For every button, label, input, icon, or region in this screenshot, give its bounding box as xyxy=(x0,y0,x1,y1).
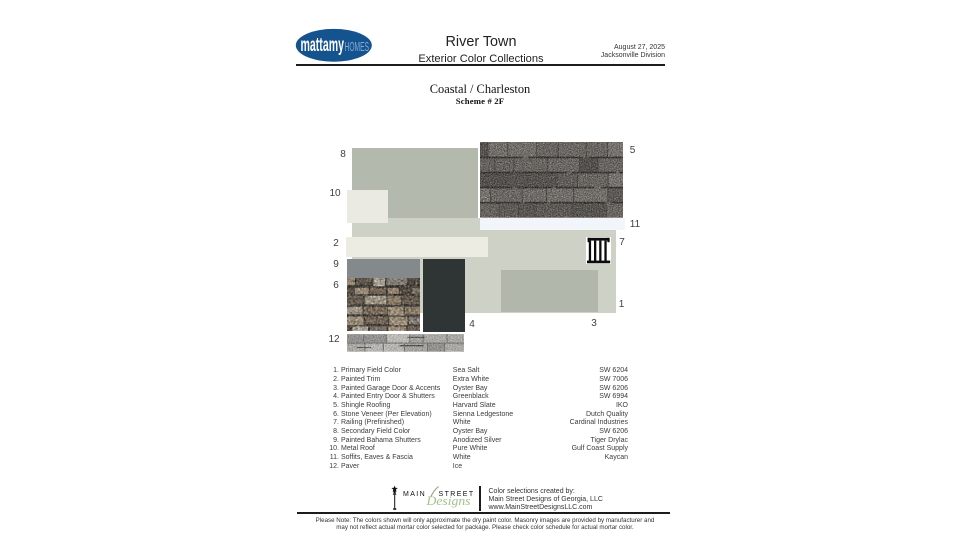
svg-text:MAIN: MAIN xyxy=(403,491,426,498)
svg-text:HOMES: HOMES xyxy=(345,39,370,54)
svg-text:mattamy: mattamy xyxy=(301,34,345,56)
svg-text:Designs: Designs xyxy=(425,493,470,508)
